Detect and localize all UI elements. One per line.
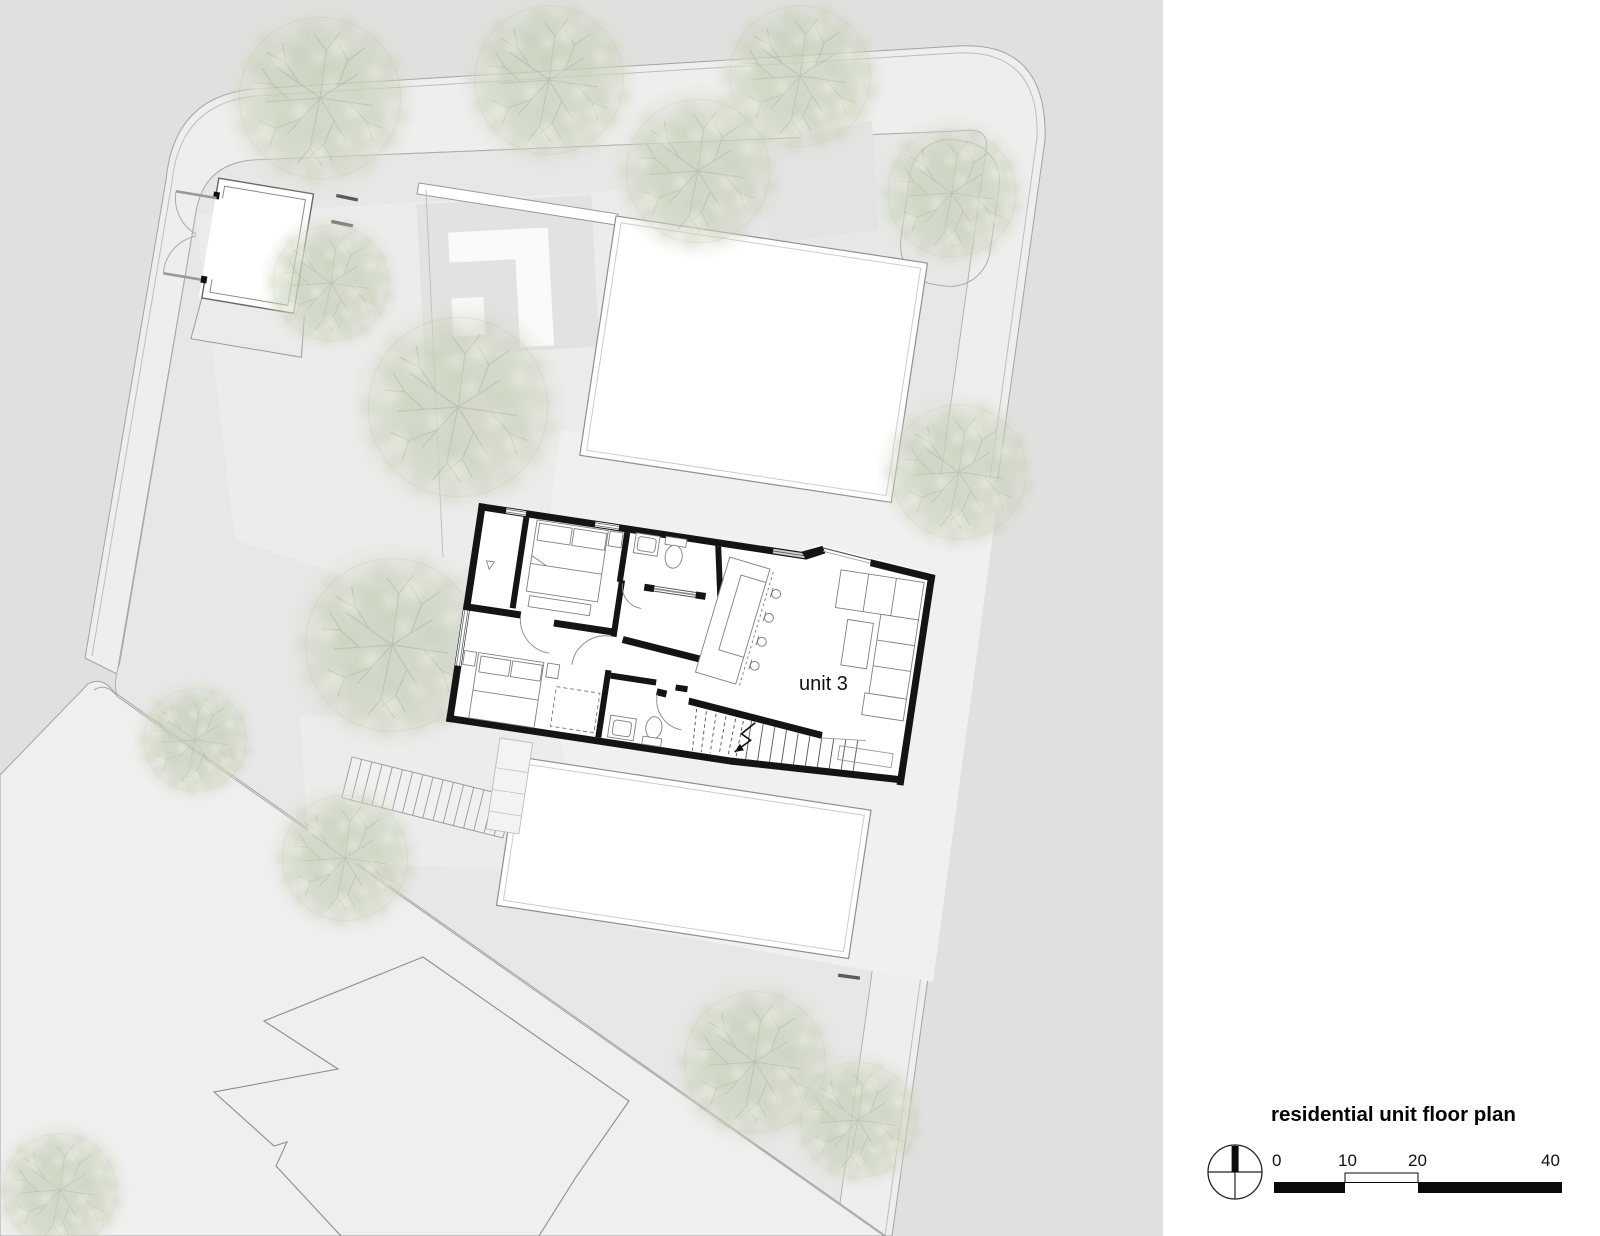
svg-text:unit 3: unit 3 — [799, 673, 848, 695]
svg-text:residential unit floor plan: residential unit floor plan — [1271, 1103, 1516, 1126]
svg-text:10: 10 — [1338, 1151, 1357, 1170]
svg-text:20: 20 — [1408, 1151, 1427, 1170]
svg-text:40: 40 — [1541, 1151, 1560, 1170]
svg-text:0: 0 — [1272, 1151, 1281, 1170]
